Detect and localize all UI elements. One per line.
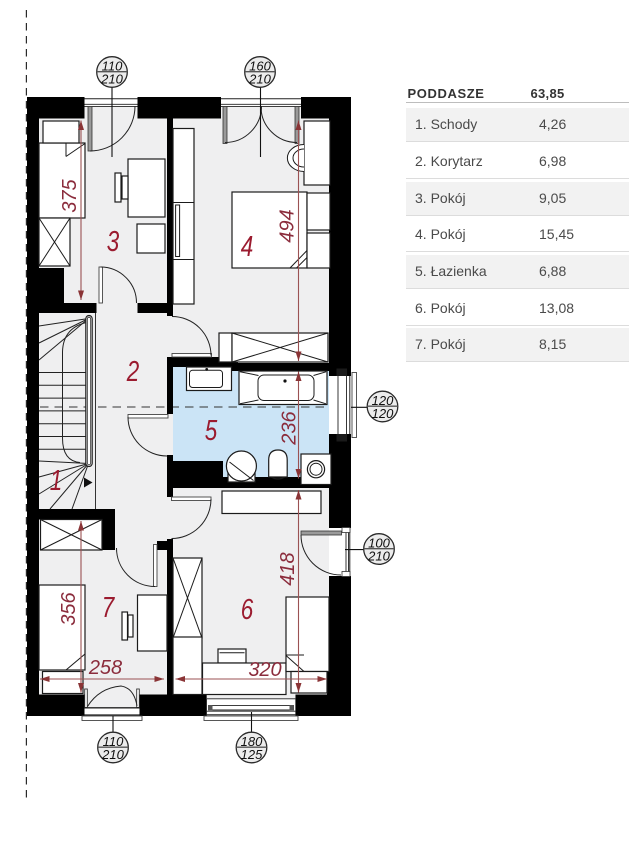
- svg-text:356: 356: [58, 591, 80, 625]
- svg-text:210: 210: [367, 549, 390, 564]
- svg-text:5: 5: [205, 415, 218, 447]
- svg-text:210: 210: [101, 747, 124, 762]
- svg-text:375: 375: [59, 178, 81, 212]
- svg-text:125: 125: [241, 747, 263, 762]
- svg-text:210: 210: [248, 72, 271, 87]
- svg-text:236: 236: [279, 410, 301, 445]
- svg-text:320: 320: [248, 659, 281, 681]
- svg-text:258: 258: [88, 657, 122, 679]
- svg-text:418: 418: [277, 552, 299, 585]
- svg-text:120: 120: [372, 406, 394, 421]
- svg-text:210: 210: [100, 72, 123, 87]
- svg-text:4: 4: [241, 231, 254, 263]
- svg-text:7: 7: [102, 592, 116, 624]
- svg-text:1: 1: [50, 465, 63, 497]
- svg-text:6: 6: [241, 594, 254, 626]
- svg-text:494: 494: [277, 209, 299, 242]
- svg-text:2: 2: [126, 356, 139, 388]
- svg-text:3: 3: [107, 226, 120, 258]
